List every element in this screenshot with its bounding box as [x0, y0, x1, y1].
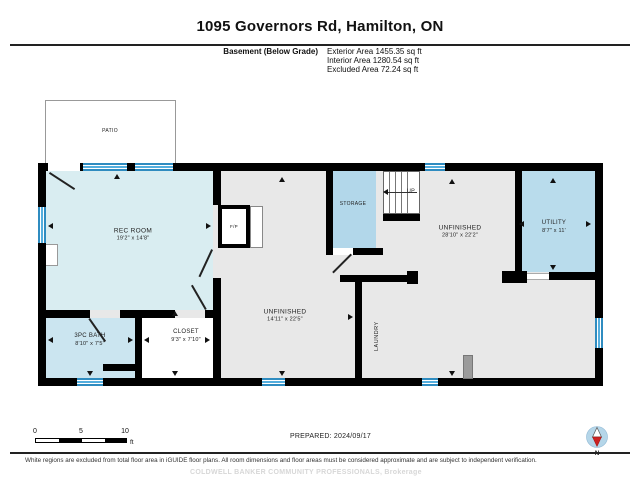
wall: [205, 310, 221, 318]
scale-unit: ft: [130, 439, 134, 446]
window-left: [38, 207, 46, 243]
window-bottom-mid: [262, 378, 285, 386]
footer-divider: [10, 452, 630, 454]
brokerage-watermark: COLDWELL BANKER COMMUNITY PROFESSIONALS,…: [190, 469, 460, 476]
scale-tick-10: 10: [121, 428, 129, 435]
window-bottom-right: [422, 378, 438, 386]
prepared-date: PREPARED: 2024/09/17: [290, 433, 371, 440]
dim-arrow: [114, 174, 120, 179]
wall-utility-bottom: [549, 272, 595, 280]
disclaimer-text: White regions are excluded from total fl…: [25, 457, 625, 464]
stair-direction-arrow: [383, 189, 388, 195]
wall-utility-stub: [502, 271, 527, 283]
scale-tick-0: 0: [33, 428, 37, 435]
room-closet: [142, 318, 213, 378]
wall-under-stairs: [383, 214, 420, 221]
dim-arrow: [48, 337, 53, 343]
unfinished-right-label: UNFINISHED 28'10" x 22'2": [439, 225, 482, 240]
dim-arrow: [172, 311, 178, 316]
window-patio-slider-2: [135, 163, 173, 171]
rec-room-label: REC ROOM 19'2" x 14'8": [114, 228, 152, 243]
wall: [46, 310, 90, 318]
wall: [213, 171, 221, 205]
window-bath: [77, 378, 103, 386]
page-title: 1095 Governors Rd, Hamilton, ON: [0, 18, 640, 35]
dim-arrow: [449, 371, 455, 376]
closet-label: CLOSET 9'3" x 7'10": [171, 329, 201, 343]
storage-label: STORAGE: [340, 201, 366, 207]
dim-arrow: [144, 337, 149, 343]
floor-label: Basement (Below Grade): [100, 47, 318, 56]
utility-label: UTILITY 8'7" x 11': [542, 220, 566, 234]
dim-arrow: [128, 337, 133, 343]
wall-storage-left: [326, 171, 333, 255]
laundry-label: LAUNDRY: [374, 307, 380, 351]
duct: [463, 355, 473, 379]
wall-end-block: [407, 271, 418, 284]
scale-bar-segment: [59, 439, 82, 442]
stairs-up-label: UP: [407, 189, 415, 196]
dim-arrow: [48, 223, 53, 229]
wall-laundry-left: [355, 282, 362, 378]
dim-arrow: [550, 178, 556, 183]
wall-laundry-top: [340, 275, 407, 282]
excluded-area: Excluded Area 72.24 sq ft: [327, 65, 418, 74]
scale-bar: [35, 438, 127, 443]
dim-arrow: [586, 221, 591, 227]
wall: [120, 310, 175, 318]
exterior-area: Exterior Area 1455.35 sq ft: [327, 47, 422, 56]
window-right: [595, 318, 603, 348]
header-divider: [10, 44, 630, 46]
dim-arrow: [348, 314, 353, 320]
dim-arrow: [206, 223, 211, 229]
dim-arrow: [279, 371, 285, 376]
dim-arrow: [205, 337, 210, 343]
unfinished-mid-label: UNFINISHED 14'11" x 22'5": [264, 309, 307, 324]
scale-tick-5: 5: [79, 428, 83, 435]
dim-arrow: [172, 371, 178, 376]
wall-storage-bottom: [353, 248, 383, 255]
room-storage: [333, 171, 376, 248]
wall: [135, 318, 142, 378]
floor-plan-page: 1095 Governors Rd, Hamilton, ON Basement…: [0, 0, 640, 494]
patio-door-gap: [48, 163, 80, 171]
utility-door-gap: [527, 273, 549, 280]
bath-label: 3PC BATH 8'10" x 7'5": [74, 333, 105, 347]
dim-arrow: [449, 179, 455, 184]
window-top: [425, 163, 445, 171]
fireplace-label: F/P: [230, 224, 238, 230]
compass-icon: [583, 424, 611, 452]
wall: [213, 278, 221, 378]
dim-arrow: [550, 265, 556, 270]
fireplace-chimney: [250, 206, 263, 248]
wall-shower-stub: [103, 364, 135, 371]
patio-label: PATIO: [102, 128, 118, 134]
wall-notch: [46, 244, 58, 266]
dim-arrow: [87, 371, 93, 376]
dim-arrow: [519, 221, 524, 227]
interior-area: Interior Area 1280.54 sq ft: [327, 56, 419, 65]
window-patio-slider-1: [83, 163, 127, 171]
dim-arrow: [279, 177, 285, 182]
scale-bar-segment: [105, 439, 126, 442]
